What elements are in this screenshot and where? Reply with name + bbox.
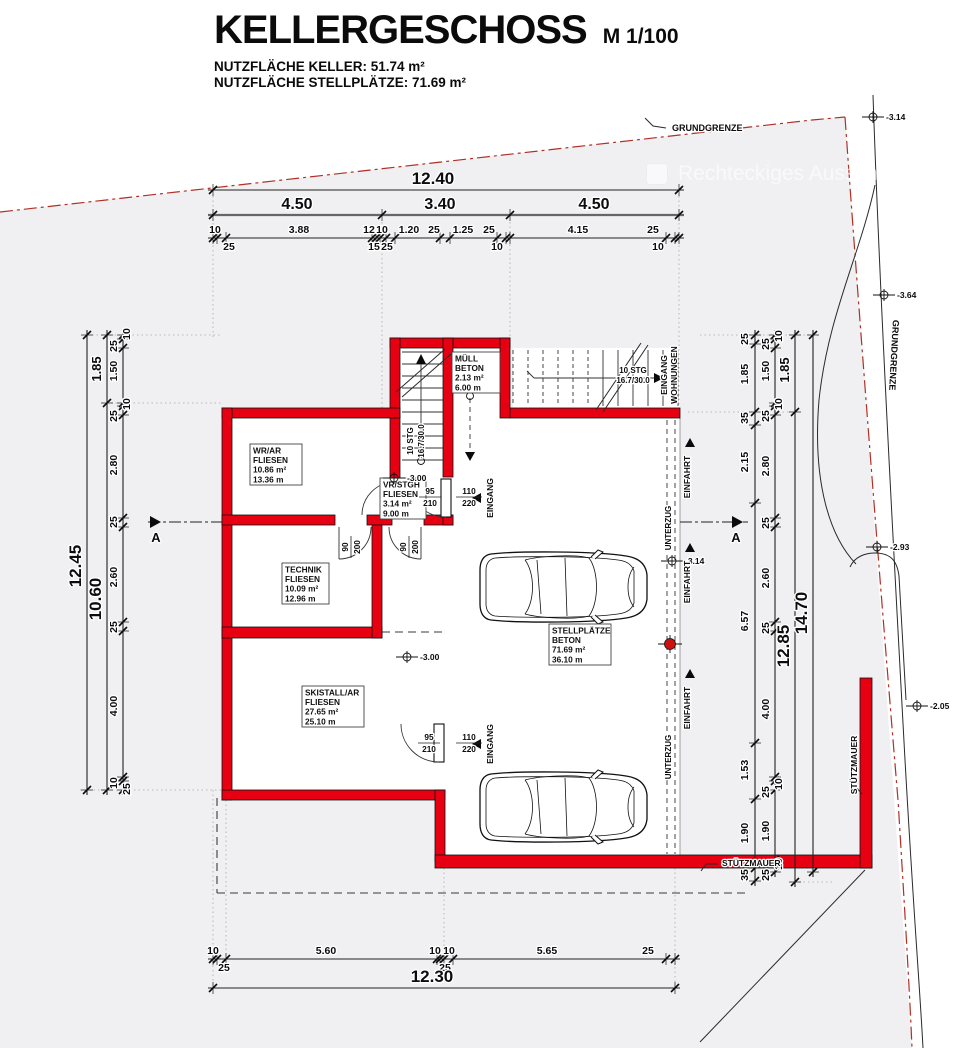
dim-label: 25 [642,945,654,957]
unterzug-label-1: UNTERZUG [664,506,673,550]
room-skistall: SKISTALL/ARFLIESEN27.65 m²25.10 m [302,686,364,727]
dim-label: 25 [218,962,230,974]
elevation-marker: -3.14 [862,111,906,123]
stair-int-label-1: 10 STG [406,427,415,455]
dim-label: 3.88 [289,224,310,236]
dim-label: 10 [209,224,221,236]
room-skistall-line: 25.10 m [305,716,335,726]
stuetzmauer-bottom: STÜTZMAUER [722,858,781,868]
dim-label: 1.25 [453,224,474,236]
dim-label: 10 [652,241,664,253]
dim-label: 110 [462,486,476,496]
dim-label: 10 [121,328,133,340]
dim-label: 1.50 [108,361,120,382]
eingang-wohnungen-1: EINGANG [659,355,669,395]
dim-label: 12.45 [66,545,85,588]
dim-label: 2.80 [108,455,120,476]
room-vr-stgh-line: 3.14 m² [383,499,412,509]
dim-label: 25 [483,224,495,236]
dim-label: 1.90 [739,823,751,844]
title-block: KELLERGESCHOSSM 1/100 NUTZFLÄCHE KELLER:… [214,8,679,91]
eingang-wohnungen-2: WOHNUNGEN [669,346,679,404]
dim-label: 10 [108,777,120,789]
stair-ext-label-2: 16.7/30.0 [616,376,650,385]
wall [372,525,382,638]
room-technik: TECHNIKFLIESEN10.09 m²12.96 m [282,563,329,604]
dim-label: 12.40 [412,169,455,188]
einfahrt-label-2: EINFAHRT [682,560,692,603]
einfahrt-label-1: EINFAHRT [682,455,692,498]
dim-label: 10 [491,241,503,253]
dim-label: 1.90 [760,821,772,842]
dim-label: 25 [760,517,772,529]
dim-label: 200 [352,540,362,554]
room-wr-ar-line: 13.36 m [253,474,283,484]
dim-label: 10 [773,330,785,342]
dim-label: 2.60 [108,567,120,588]
dim-label: 25 [760,869,772,881]
room-wr-ar-line: FLIESEN [253,455,288,465]
dim-label: 25 [108,340,120,352]
grundgrenze-top: GRUNDGRENZE [672,123,743,133]
subtitle-keller: NUTZFLÄCHE KELLER: 51.74 m² [214,59,679,75]
dim-label: 25 [428,224,440,236]
wall [390,418,400,478]
dim-label: 25 [760,338,772,350]
room-wr-ar: WR/ARFLIESEN10.86 m²13.36 m [250,444,302,485]
einfahrt-label-3: EINFAHRT [682,686,692,729]
room-stellplaetze-line: 71.69 m² [552,645,585,655]
page-title: KELLERGESCHOSS [214,8,587,52]
elevation-marker: -2.05 [906,700,950,712]
room-vr-stgh: VR/STGHFLIESEN3.14 m²9.00 m [380,478,426,519]
room-stellplaetze: STELLPLÄTZEBETON71.69 m²36.10 m [549,624,611,665]
elevation-value: -3.64 [897,290,917,300]
dim-label: 25 [108,621,120,633]
dim-label: 4.00 [760,699,772,720]
stuetzmauer-right: STÜTZMAUER [849,736,859,795]
dim-label: 220 [462,744,476,754]
scale-label: M 1/100 [603,25,679,48]
dim-label: 12 [363,224,375,236]
dim-label: 6.57 [739,611,751,632]
dim-label: 1.85 [89,356,104,381]
stair-ext-label-1: 10 STG [619,366,647,375]
room-muell-line: 6.00 m [455,382,481,392]
dim-label: 2.80 [760,456,772,477]
dim-label: 210 [422,744,436,754]
grundgrenze-leader [645,118,666,128]
dim-label: 25 [760,410,772,422]
dim-label: 35 [739,412,751,424]
wall [222,790,445,800]
dim-label: 25 [760,786,772,798]
room-technik-line: FLIESEN [285,574,320,584]
dim-label: 210 [423,498,437,508]
grundgrenze-right: GRUNDGRENZE [887,320,901,391]
room-skistall-line: SKISTALL/AR [305,688,359,698]
stair-int-label-2: 16.7/30.0 [417,424,426,458]
car-top-view-1 [480,550,647,624]
room-wr-ar-line: 10.86 m² [253,465,286,475]
room-vr-stgh-line: 9.00 m [383,508,409,518]
entry-door-leaf-top [441,479,451,517]
dim-label: 12.30 [411,967,454,986]
room-stellplaetze-line: 36.10 m [552,654,582,664]
dim-label: 25 [381,241,393,253]
elevation-marker: -3.64 [873,289,917,301]
room-muell-line: 2.13 m² [455,373,484,383]
dim-label: 10 [773,398,785,410]
wall-stuetzmauer-bottom [435,855,872,868]
elevation-value: -3.14 [886,112,906,122]
room-muell-line: BETON [455,363,484,373]
dim-label: 1.20 [399,224,420,236]
room-technik-line: 12.96 m [285,593,315,603]
dim-label: 3.40 [424,196,455,213]
room-wr-ar-line: WR/AR [253,446,281,456]
dim-label: 25 [223,241,235,253]
wall [443,338,453,477]
wall [222,515,335,525]
dim-label: 25 [121,783,133,795]
dim-label: 200 [410,540,420,554]
dim-label: 5.60 [316,945,337,957]
room-skistall-line: 27.65 m² [305,707,338,717]
dim-label: 2.15 [739,452,751,473]
wall [222,627,382,638]
section-a-left: A [151,530,161,545]
elevation-value: -2.05 [930,701,950,711]
dim-label: 10 [207,945,219,957]
dim-label: 4.50 [281,196,312,213]
dim-label: 10 [429,945,441,957]
room-vr-stgh-line: FLIESEN [383,489,418,499]
dim-label: 1.85 [777,357,792,382]
dim-label: 10.60 [86,578,105,621]
dim-label: 25 [647,224,659,236]
dim-label: 25 [108,516,120,528]
column-marker-icon [665,639,676,650]
dim-label: 2.60 [760,568,772,589]
section-a-right: A [731,530,741,545]
dim-label: 110 [462,732,476,742]
wall [390,338,400,418]
subtitle-stellplaetze: NUTZFLÄCHE STELLPLÄTZE: 71.69 m² [214,75,679,91]
dim-label: 10 [443,945,455,957]
dim-label: 14.70 [792,592,811,635]
dim-label: 12.85 [774,625,793,668]
room-muell-line: MÜLL [455,354,478,364]
floor-plan-page: WR/ARFLIESEN10.86 m²13.36 mMÜLLBETON2.13… [0,0,961,1048]
room-skistall-line: FLIESEN [305,697,340,707]
dim-label: 90 [340,542,350,552]
dim-label: 95 [424,732,434,742]
wall [222,408,400,418]
dim-label: 25 [760,622,772,634]
dim-label: 1.53 [739,760,751,781]
dim-label: 25 [739,333,751,345]
wall [222,408,232,800]
room-technik-line: TECHNIK [285,565,322,575]
eingang-door-1: EINGANG [485,478,495,518]
wall-stuetzmauer-right [860,678,872,868]
eingang-door-2: EINGANG [485,724,495,764]
room-muell: MÜLLBETON2.13 m²6.00 m [452,352,500,393]
dim-label: 25 [108,410,120,422]
dim-label: 35 [739,869,751,881]
dim-label: 1.85 [739,364,751,385]
dim-label: 1.50 [760,361,772,382]
dim-label: 5.65 [537,945,558,957]
dim-label: 90 [398,542,408,552]
dim-label: 4.50 [578,196,609,213]
elevation-value: -3.00 [420,652,440,662]
unterzug-label-2: UNTERZUG [664,735,673,779]
dim-label: 4.00 [108,696,120,717]
wall [510,408,680,418]
car-top-view-2 [480,770,647,844]
dim-label: 15 [368,241,380,253]
dim-label: 95 [425,486,435,496]
dim-label: 10 [376,224,388,236]
floor-plan-canvas: WR/ARFLIESEN10.86 m²13.36 mMÜLLBETON2.13… [0,0,961,1048]
elevation-value: -3.00 [407,473,427,483]
wall [500,338,510,418]
dim-label: 10 [773,778,785,790]
room-technik-line: 10.09 m² [285,584,318,594]
dim-label: 10 [121,398,133,410]
dim-label: 4.15 [568,224,589,236]
elevation-value: -2.93 [890,542,910,552]
room-stellplaetze-line: STELLPLÄTZE [552,626,611,636]
dim-label: 220 [462,498,476,508]
room-stellplaetze-line: BETON [552,635,581,645]
wall [435,790,445,862]
